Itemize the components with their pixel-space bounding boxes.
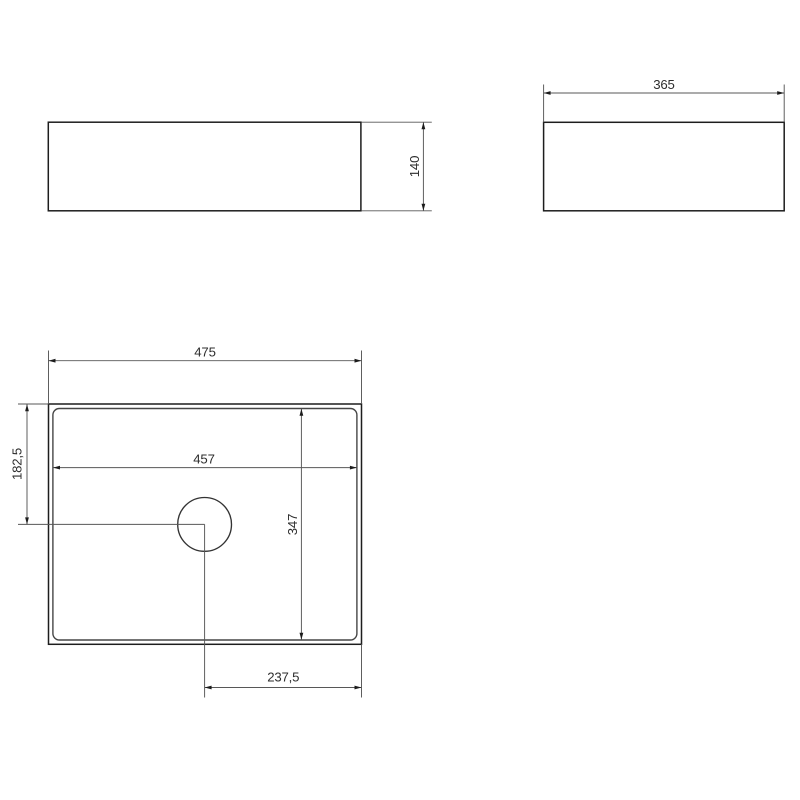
svg-text:457: 457 xyxy=(193,452,214,467)
svg-text:475: 475 xyxy=(194,345,215,360)
svg-text:182,5: 182,5 xyxy=(10,448,25,480)
svg-text:347: 347 xyxy=(285,514,300,535)
svg-text:365: 365 xyxy=(653,77,674,92)
svg-text:237,5: 237,5 xyxy=(267,670,299,685)
svg-text:140: 140 xyxy=(407,156,422,177)
